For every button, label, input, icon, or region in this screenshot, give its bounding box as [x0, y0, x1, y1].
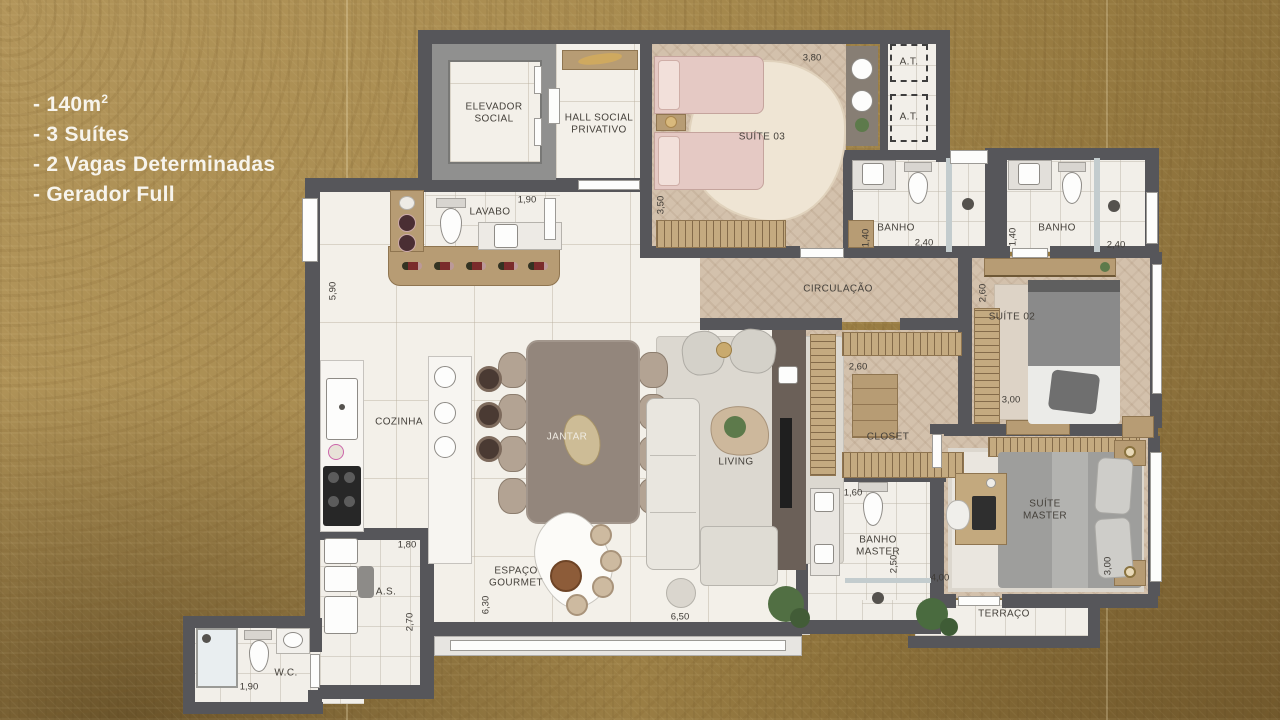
wall — [936, 30, 950, 162]
door-threshold-suite02 — [1012, 248, 1048, 258]
wall — [188, 616, 312, 628]
dim-living-width: 6,50 — [671, 612, 690, 623]
faucet-icon — [339, 404, 345, 410]
suite02-nightstand — [1122, 416, 1154, 438]
gourmet-stool — [566, 594, 588, 616]
lavabo-window — [544, 198, 556, 240]
plant-icon — [724, 416, 746, 438]
suite03-lamp — [665, 116, 677, 128]
wall — [880, 30, 888, 156]
washer — [324, 538, 358, 564]
wall — [1002, 594, 1158, 608]
room-label-suite03: SUÍTE 03 — [739, 131, 786, 143]
banho2-shower-glass — [1094, 158, 1100, 252]
dim-suite02-height: 2,60 — [978, 284, 989, 303]
wall — [985, 148, 1007, 258]
dim-banho-master-height: 2,50 — [889, 555, 900, 574]
wall — [308, 618, 322, 652]
dim-banho1-height: 1,40 — [861, 229, 872, 248]
dim-banho1-width: 2,40 — [915, 238, 934, 249]
laundry-sink — [324, 596, 358, 634]
wall — [900, 318, 958, 330]
wall — [640, 30, 652, 246]
wall — [1088, 600, 1100, 648]
suite03-bed-pillow — [658, 60, 680, 110]
window — [1150, 452, 1162, 582]
floorplan-page: { "info_panel": { "items": [ {"text": "-… — [0, 0, 1280, 720]
desk-chair — [946, 500, 970, 530]
room-label-closet: CLOSET — [867, 431, 909, 443]
burner-icon — [328, 496, 339, 507]
master-pillow — [1094, 457, 1134, 515]
shower-head-icon — [1108, 200, 1120, 212]
suite03-vanity-sink — [851, 58, 873, 80]
sofa-cushion-line — [650, 512, 696, 513]
wall — [183, 616, 195, 714]
window — [1152, 264, 1162, 394]
wine-bottle-icon — [402, 262, 422, 270]
elevator-door — [548, 88, 560, 124]
wall — [930, 468, 944, 608]
closet-rack-left — [810, 334, 836, 476]
sofa-cushion-line — [650, 455, 696, 456]
room-label-at-upper: A.T. — [900, 56, 919, 68]
banho2-toilet-tank — [1058, 162, 1086, 172]
info-gerador: - Gerador Full — [33, 180, 275, 210]
room-label-as: A.S. — [376, 586, 397, 598]
closet-rack-top — [842, 332, 962, 356]
lavabo-sink — [494, 224, 518, 248]
wine-bottle-icon — [528, 262, 548, 270]
bar-decor — [398, 234, 416, 252]
dining-chair — [498, 436, 528, 472]
lavabo-toilet-tank — [436, 198, 466, 208]
balcony-glass-door — [450, 640, 786, 651]
dim-suite02-width: 3,00 — [1002, 395, 1021, 406]
dim-suite-master-height: 3,00 — [1103, 557, 1114, 576]
knob-icon — [1124, 446, 1136, 458]
door-threshold-master — [932, 434, 942, 468]
knob-icon — [1124, 566, 1136, 578]
pouf — [666, 578, 696, 608]
suite02-pillow — [1048, 369, 1101, 415]
dim-suite03-width: 3,80 — [803, 53, 822, 64]
window — [302, 198, 318, 262]
superscript-2: 2 — [101, 92, 108, 106]
banho1-toilet-tank — [904, 162, 932, 172]
door-threshold-terraco — [958, 596, 1000, 606]
closet-island — [852, 374, 898, 438]
suite02-shelf — [984, 258, 1116, 277]
wall — [700, 318, 842, 330]
wall — [930, 424, 944, 434]
elevator-door-jamb — [534, 118, 542, 146]
suite02-wardrobe — [974, 308, 1000, 424]
plant-icon — [1100, 262, 1110, 272]
gourmet-stool — [592, 576, 614, 598]
dining-chair — [498, 394, 528, 430]
window — [1146, 192, 1158, 244]
dim-suite-master-width: 4,00 — [931, 573, 950, 584]
food-tray — [550, 560, 582, 592]
room-label-suite02: SUÍTE 02 — [989, 311, 1036, 323]
kitchen-island — [428, 356, 472, 564]
room-label-wc: W.C. — [274, 667, 297, 679]
dim-as-height: 2,70 — [405, 613, 416, 632]
master-sink — [814, 544, 834, 564]
room-label-jantar: JANTAR — [547, 431, 588, 443]
wall — [318, 685, 434, 699]
plant-icon — [940, 618, 958, 636]
info-suites: - 3 Suítes — [33, 120, 275, 150]
dim-closet-width: 2,60 — [849, 362, 868, 373]
place-setting — [434, 402, 456, 424]
door-threshold-entry — [578, 180, 640, 190]
room-label-living: LIVING — [718, 456, 753, 468]
wall — [985, 246, 1010, 258]
master-sink — [814, 492, 834, 512]
room-label-hall: HALL SOCIALPRIVATIVO — [565, 113, 634, 136]
burner-icon — [344, 496, 355, 507]
burner-icon — [328, 472, 339, 483]
master-shower-glass — [845, 578, 931, 583]
dim-banho2-width: 2,40 — [1107, 240, 1126, 251]
bar-glasses — [399, 196, 415, 210]
wall — [908, 636, 1100, 648]
banho1-shower-glass — [946, 158, 952, 252]
wine-bottle-icon — [498, 262, 518, 270]
wall — [183, 702, 323, 714]
bar-stool — [476, 366, 502, 392]
dining-chair — [498, 478, 528, 514]
shower-head-icon — [872, 592, 884, 604]
flower-decor — [328, 444, 344, 460]
dim-cozinha-height: 5,90 — [328, 282, 339, 301]
closet-rack-bottom — [842, 452, 964, 478]
shower-head-icon — [202, 634, 211, 643]
room-label-banho2: BANHO — [1038, 222, 1076, 234]
plant-icon — [790, 608, 810, 628]
suite03-bed-pillow — [658, 136, 680, 186]
wall — [1050, 246, 1157, 258]
gourmet-stool — [600, 550, 622, 572]
desk-lamp — [986, 478, 996, 488]
dining-chair — [498, 352, 528, 388]
wc-sink — [283, 632, 303, 648]
master-toilet-tank — [858, 482, 888, 492]
plant-icon — [855, 118, 869, 132]
place-setting — [434, 436, 456, 458]
wall — [308, 690, 322, 714]
bar-stool — [476, 436, 502, 462]
elevator-door-jamb — [534, 66, 542, 94]
dining-chair — [638, 352, 668, 388]
wall — [430, 622, 802, 636]
room-label-elevador: ELEVADORSOCIAL — [466, 102, 523, 125]
banho1-sink — [862, 163, 884, 185]
room-label-circulacao: CIRCULAÇÃO — [803, 283, 873, 295]
bar-stool — [476, 402, 502, 428]
shower-head-icon — [962, 198, 974, 210]
sofa-chaise — [700, 526, 778, 586]
room-label-gourmet: ESPAÇOGOURMET — [489, 566, 543, 589]
dim-as-width: 1,80 — [398, 540, 417, 551]
dim-lavabo-width: 1,90 — [518, 195, 537, 206]
laptop-icon — [972, 496, 996, 530]
room-label-terraco: TERRAÇO — [978, 608, 1030, 620]
room-label-lavabo: LAVABO — [470, 206, 511, 218]
dim-wc-width: 1,90 — [240, 682, 259, 693]
room-label-suite-master: SUÍTEMASTER — [1023, 499, 1067, 522]
wall — [418, 30, 432, 192]
banho2-sink — [1018, 163, 1040, 185]
room-label-cozinha: COZINHA — [375, 416, 423, 428]
tv-icon — [780, 418, 792, 508]
wall — [418, 30, 950, 44]
info-panel: - 140m2 - 3 Suítes - 2 Vagas Determinada… — [33, 84, 275, 210]
dim-banho2-height: 1,40 — [1008, 228, 1019, 247]
wc-toilet-tank — [244, 630, 272, 640]
dim-suite03-height: 3,50 — [656, 196, 667, 215]
suite02-headboard — [1028, 280, 1120, 292]
water-heater — [358, 566, 374, 598]
bar-decor — [398, 214, 416, 232]
fireplace-panel — [778, 366, 798, 384]
door-threshold-wc — [310, 654, 320, 688]
suite03-vanity-sink — [851, 90, 873, 112]
suite03-wardrobe — [656, 220, 786, 248]
sofa — [646, 398, 700, 570]
dryer — [324, 566, 358, 592]
info-vagas: - 2 Vagas Determinadas — [33, 150, 275, 180]
wine-bottle-icon — [434, 262, 454, 270]
info-area: - 140m2 — [33, 84, 275, 120]
window — [950, 150, 988, 164]
wall — [985, 148, 1157, 160]
place-setting — [434, 366, 456, 388]
gourmet-stool — [590, 524, 612, 546]
room-label-at-lower: A.T. — [900, 111, 919, 123]
room-label-banho1: BANHO — [877, 222, 915, 234]
side-table — [716, 342, 732, 358]
dim-banho-master-width: 1,60 — [844, 488, 863, 499]
door-threshold-suite03 — [800, 248, 844, 258]
dim-gourmet-height: 6,30 — [481, 596, 492, 615]
wine-bottle-icon — [466, 262, 486, 270]
burner-icon — [344, 472, 355, 483]
